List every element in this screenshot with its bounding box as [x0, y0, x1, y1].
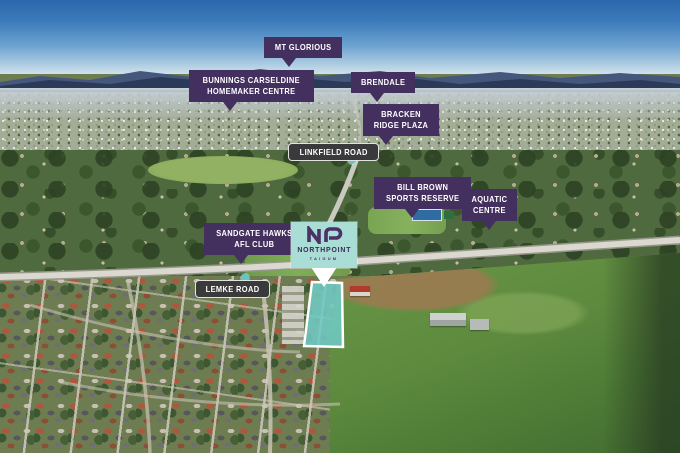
flag-label: CENTRE	[471, 205, 507, 216]
aerial-location-map: MT GLORIOUS BUNNINGS CARSELDINE HOMEMAKE…	[0, 0, 680, 453]
flag-label: SPORTS RESERVE	[386, 193, 459, 204]
northpoint-sign: NORTHPOINT TAIGUM	[291, 222, 357, 268]
road-sign-label: LINKFIELD ROAD	[300, 147, 368, 157]
flag-bunnings-carseldine: BUNNINGS CARSELDINE HOMEMAKER CENTRE	[189, 70, 314, 102]
flag-brendale: BRENDALE	[351, 72, 415, 93]
road-sign-linkfield: LINKFIELD ROAD	[288, 143, 379, 161]
flag-bracken-ridge-plaza: BRACKEN RIDGE PLAZA	[363, 104, 439, 136]
sign-brand-text: NORTHPOINT	[297, 245, 351, 254]
flag-label: HOMEMAKER CENTRE	[203, 86, 300, 97]
np-logo-icon	[305, 226, 343, 244]
flag-aquatic-centre: AQUATIC CENTRE	[462, 189, 517, 221]
flag-bill-brown-sports-reserve: BILL BROWN SPORTS RESERVE	[374, 177, 471, 209]
flag-label: SANDGATE HAWKS	[216, 228, 292, 239]
flag-label: BRACKEN	[374, 109, 429, 120]
flag-label: MT GLORIOUS	[275, 42, 332, 53]
road-sign-lemke: LEMKE ROAD	[195, 280, 270, 298]
flag-label: RIDGE PLAZA	[374, 120, 429, 131]
flag-label: BRENDALE	[361, 77, 405, 88]
flag-mt-glorious: MT GLORIOUS	[264, 37, 342, 58]
flag-label: BUNNINGS CARSELDINE	[203, 75, 300, 86]
flag-label: BILL BROWN	[386, 182, 459, 193]
flag-label: AQUATIC	[471, 194, 507, 205]
flag-label: AFL CLUB	[216, 239, 292, 250]
road-sign-label: LEMKE ROAD	[206, 284, 260, 294]
sign-suburb-text: TAIGUM	[310, 256, 339, 261]
sign-pointer	[311, 267, 337, 287]
flag-sandgate-hawks-afl-club: SANDGATE HAWKS AFL CLUB	[204, 223, 305, 255]
